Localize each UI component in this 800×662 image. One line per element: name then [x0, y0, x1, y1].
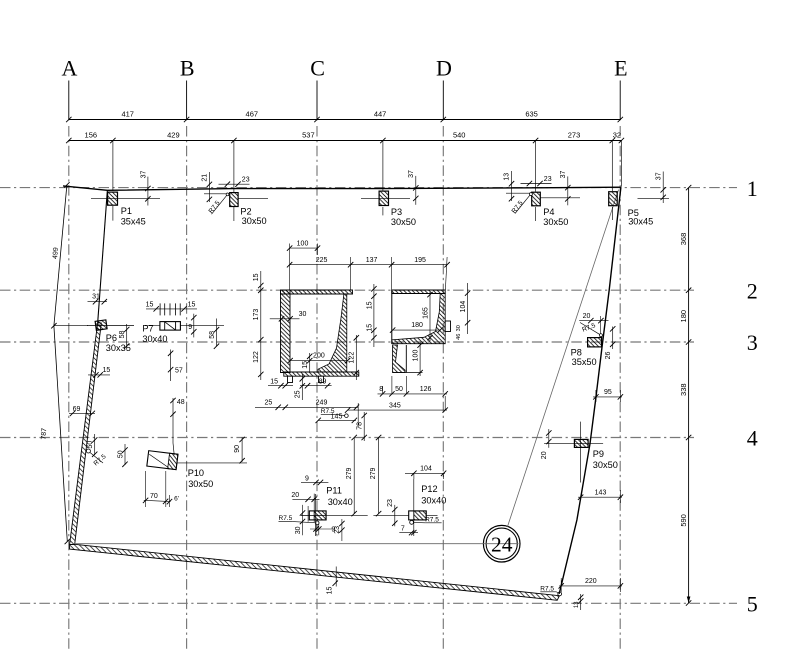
svg-text:46: 46	[456, 334, 462, 340]
svg-text:30x45: 30x45	[628, 217, 653, 227]
svg-text:58: 58	[209, 331, 216, 339]
svg-text:B: B	[180, 56, 195, 81]
svg-text:3: 3	[747, 330, 758, 355]
svg-text:26: 26	[605, 352, 612, 360]
svg-text:173: 173	[253, 309, 260, 321]
svg-text:537: 537	[302, 130, 315, 139]
svg-text:180: 180	[411, 322, 423, 329]
svg-text:100: 100	[297, 240, 309, 247]
svg-text:4: 4	[747, 426, 758, 451]
svg-text:368: 368	[679, 233, 688, 246]
svg-text:23: 23	[544, 176, 552, 183]
svg-text:30x50: 30x50	[593, 460, 618, 470]
svg-text:R7.5: R7.5	[425, 516, 439, 523]
svg-text:30x40: 30x40	[328, 497, 353, 507]
svg-text:15: 15	[270, 378, 278, 385]
svg-text:143: 143	[595, 490, 607, 497]
svg-text:23: 23	[387, 499, 394, 507]
svg-text:225: 225	[316, 257, 328, 264]
svg-text:30: 30	[299, 311, 307, 318]
svg-text:9: 9	[305, 475, 309, 482]
svg-text:24: 24	[491, 532, 513, 556]
svg-text:30x35: 30x35	[106, 343, 131, 353]
svg-text:P12: P12	[421, 484, 437, 494]
svg-text:15: 15	[253, 273, 260, 281]
svg-text:635: 635	[525, 109, 538, 118]
svg-text:122: 122	[253, 351, 260, 363]
svg-text:57: 57	[175, 367, 183, 374]
svg-text:P8: P8	[571, 347, 582, 357]
svg-text:37: 37	[408, 170, 415, 178]
svg-text:104: 104	[460, 301, 467, 313]
svg-text:1: 1	[747, 176, 758, 201]
svg-text:165: 165	[422, 307, 429, 319]
svg-text:31: 31	[92, 294, 100, 301]
svg-text:145: 145	[331, 414, 343, 421]
svg-text:345: 345	[389, 402, 401, 409]
svg-text:95: 95	[604, 389, 612, 396]
svg-text:35x50: 35x50	[572, 357, 597, 367]
svg-text:338: 338	[679, 383, 688, 396]
svg-text:37: 37	[655, 172, 662, 180]
svg-text:30x50: 30x50	[242, 216, 267, 226]
svg-text:180: 180	[679, 310, 688, 323]
svg-text:P1: P1	[121, 206, 132, 216]
svg-text:273: 273	[568, 130, 581, 139]
svg-text:25: 25	[265, 400, 273, 407]
svg-text:23: 23	[242, 177, 250, 184]
svg-text:5: 5	[747, 592, 758, 617]
svg-text:126: 126	[420, 386, 432, 393]
svg-text:100: 100	[413, 350, 420, 362]
svg-text:156: 156	[85, 130, 98, 139]
svg-text:78: 78	[357, 422, 364, 430]
svg-text:20: 20	[291, 492, 299, 499]
svg-text:137: 137	[366, 257, 378, 264]
svg-text:30x40: 30x40	[421, 495, 446, 505]
svg-text:540: 540	[453, 130, 466, 139]
svg-text:A: A	[61, 56, 77, 81]
svg-text:23: 23	[334, 526, 341, 534]
svg-text:279: 279	[370, 467, 377, 479]
svg-text:13: 13	[504, 173, 511, 181]
svg-text:447: 447	[374, 109, 387, 118]
svg-text:7: 7	[401, 525, 405, 532]
svg-text:30x50: 30x50	[188, 479, 213, 489]
svg-text:30: 30	[295, 526, 302, 534]
svg-text:6': 6'	[174, 496, 179, 503]
svg-text:122: 122	[349, 352, 356, 364]
svg-text:2: 2	[747, 278, 758, 303]
svg-text:37: 37	[140, 171, 147, 179]
svg-text:P3: P3	[391, 207, 402, 217]
svg-text:20: 20	[583, 313, 591, 320]
svg-text:37: 37	[560, 171, 567, 179]
svg-text:15: 15	[366, 301, 373, 309]
svg-text:P7: P7	[142, 324, 153, 334]
svg-text:30x50: 30x50	[543, 217, 568, 227]
svg-text:P11: P11	[326, 486, 342, 496]
svg-text:69: 69	[73, 406, 81, 413]
svg-text:467: 467	[246, 109, 259, 118]
svg-text:417: 417	[121, 109, 134, 118]
svg-text:195: 195	[414, 257, 426, 264]
svg-text:25: 25	[295, 390, 302, 398]
svg-text:35x45: 35x45	[121, 216, 146, 226]
svg-text:15: 15	[146, 302, 154, 309]
svg-text:R7.5: R7.5	[279, 515, 293, 522]
svg-text:58: 58	[119, 331, 126, 339]
svg-text:15: 15	[326, 587, 333, 595]
svg-text:30: 30	[456, 325, 462, 331]
svg-text:R7.5: R7.5	[540, 585, 554, 592]
svg-text:15: 15	[103, 367, 111, 374]
svg-text:50: 50	[87, 441, 94, 449]
svg-text:220: 220	[585, 578, 597, 585]
svg-text:E: E	[614, 56, 627, 81]
svg-text:P9: P9	[593, 449, 604, 459]
svg-text:13: 13	[574, 601, 580, 608]
svg-text:90: 90	[234, 445, 241, 453]
svg-text:499: 499	[52, 247, 60, 259]
svg-text:9: 9	[188, 324, 192, 331]
svg-text:50: 50	[117, 450, 124, 458]
svg-text:89: 89	[319, 378, 327, 385]
svg-text:C: C	[310, 56, 325, 81]
svg-text:P6: P6	[106, 333, 117, 343]
svg-text:P10: P10	[188, 468, 204, 478]
svg-text:15: 15	[188, 302, 196, 309]
svg-text:787: 787	[41, 428, 49, 440]
svg-text:429: 429	[167, 130, 180, 139]
svg-text:32: 32	[613, 130, 621, 139]
svg-text:D: D	[436, 56, 452, 81]
svg-text:P4: P4	[543, 207, 554, 217]
svg-text:279: 279	[346, 467, 353, 479]
svg-text:30x50: 30x50	[391, 217, 416, 227]
svg-text:21: 21	[202, 174, 209, 182]
svg-text:48: 48	[177, 399, 185, 406]
svg-text:200: 200	[313, 353, 325, 360]
svg-text:15: 15	[302, 361, 309, 369]
svg-text:249: 249	[316, 400, 328, 407]
svg-text:590: 590	[679, 514, 688, 527]
svg-text:20: 20	[541, 451, 548, 459]
svg-text:30x40: 30x40	[142, 334, 167, 344]
svg-text:50: 50	[395, 386, 403, 393]
svg-text:15: 15	[366, 324, 373, 332]
svg-text:104: 104	[420, 466, 432, 473]
svg-text:70: 70	[150, 493, 158, 500]
